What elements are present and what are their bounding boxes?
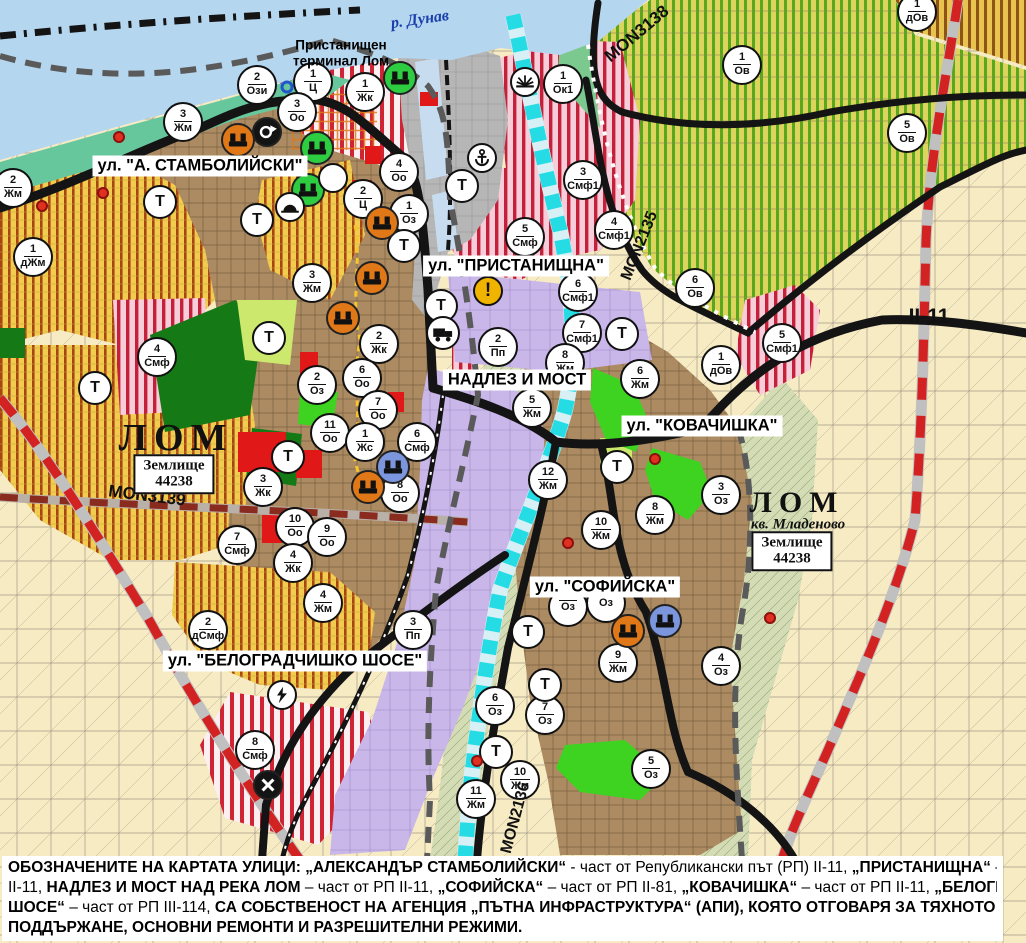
zone-badge-6-Оз: 6Оз [475, 686, 515, 726]
street-label: ул. "ПРИСТАНИЩНА" [423, 256, 609, 277]
zone-badge-3-Жм: 3Жм [292, 263, 332, 303]
zone-badge-1-Ов: 1Ов [722, 45, 762, 85]
culture-monument-icon [221, 123, 255, 157]
caption-line: II-11, НАДЛЕЗ И МОСТ НАД РЕКА ЛОМ – част… [8, 878, 997, 898]
zone-badge-1-дОв: 1дОв [701, 345, 741, 385]
zone-badge-5-Ов: 5Ов [887, 113, 927, 153]
zone-badge-2-дСмф: 2дСмф [188, 610, 228, 650]
zone-badge-3-Оо: 3Оо [277, 92, 317, 132]
transport-badge: Т [78, 371, 112, 405]
poi-blue-ring [281, 81, 294, 94]
zone-badge-4-Оо: 4Оо [379, 152, 419, 192]
land-register-box: Землище 44238 [133, 454, 214, 494]
sunrise-icon [510, 67, 540, 97]
transport-badge: Т [605, 317, 639, 351]
transport-badge: Т [143, 185, 177, 219]
caption-line: ШОСЕ“ – част от РП III-114, СА СОБСТВЕНО… [8, 898, 997, 918]
culture-monument-icon [355, 261, 389, 295]
zone-badge-3-Оз: 3Оз [701, 475, 741, 515]
zone-badge-4-Оз: 4Оз [701, 646, 741, 686]
poi-red-dot [649, 453, 661, 465]
zone-badge-5-Смф: 5Смф [505, 217, 545, 257]
zone-badge-2-Оз: 2Оз [297, 365, 337, 405]
map-caption: ОБОЗНАЧЕНИТЕ НА КАРТАТА УЛИЦИ: „АЛЕКСАНД… [2, 856, 1003, 941]
road-number-label: II-11 [909, 305, 950, 329]
zone-badge-11-Оо: 11Оо [310, 413, 350, 453]
transport-badge: Т [252, 321, 286, 355]
transport-badge: Т [240, 203, 274, 237]
port-terminal-label: Пристанищен терминал Лом [293, 37, 389, 68]
zoning-map: 2Ози1Ц1Жк3Оо3Жм2Жм1дЖм1Ок11Ов1дОв5Ов3Смф… [0, 0, 1026, 943]
transport-badge: Т [511, 615, 545, 649]
zone-badge-1-Ок1: 1Ок1 [543, 64, 583, 104]
zone-badge-2-Ози: 2Ози [237, 65, 277, 105]
zone-badge-10-Жм: 10Жм [581, 510, 621, 550]
zone-badge-8-Жм: 8Жм [635, 495, 675, 535]
zone-badge-3-Жм: 3Жм [163, 102, 203, 142]
poi-red-dot [764, 612, 776, 624]
zone-badge-1-Жк: 1Жк [345, 72, 385, 112]
clover-icon [318, 163, 348, 193]
poi-red-dot [113, 131, 125, 143]
anchor-icon [467, 143, 497, 173]
street-label: НАДЛЕЗ И МОСТ [443, 370, 591, 391]
river-label: р. Дунав [390, 7, 450, 33]
culture-monument-icon [326, 301, 360, 335]
zone-badge-7-Смф: 7Смф [217, 525, 257, 565]
map-annotations: 2Ози1Ц1Жк3Оо3Жм2Жм1дЖм1Ок11Ов1дОв5Ов3Смф… [0, 0, 1026, 943]
zone-badge-2-Жм: 2Жм [0, 168, 33, 208]
transport-badge: Т [600, 450, 634, 484]
zone-badge-6-Ов: 6Ов [675, 268, 715, 308]
transport-badge: Т [271, 440, 305, 474]
zone-badge-5-Оз: 5Оз [631, 749, 671, 789]
transport-badge: Т [445, 169, 479, 203]
warning-icon: ! [473, 276, 503, 306]
culture-monument-icon [365, 206, 399, 240]
street-label: ул. "КОВАЧИШКА" [622, 416, 783, 437]
railway-crossing-icon [253, 770, 283, 800]
zone-badge-3-Жк: 3Жк [243, 467, 283, 507]
roundabout-icon [252, 117, 282, 147]
street-label: ул. "СОФИЙСКА" [530, 577, 680, 598]
zone-badge-9-Жм: 9Жм [598, 643, 638, 683]
zone-badge-4-Смф: 4Смф [137, 337, 177, 377]
city-name-label: ЛОМ [749, 486, 844, 520]
arch-icon [275, 192, 305, 222]
zone-badge-12-Жм: 12Жм [528, 460, 568, 500]
zone-badge-6-Жм: 6Жм [620, 359, 660, 399]
zone-badge-1-дОв: 1дОв [897, 0, 937, 32]
zone-badge-1-дЖм: 1дЖм [13, 237, 53, 277]
caption-line: ПОДДЪРЖАНЕ, ОСНОВНИ РЕМОНТИ И РАЗРЕШИТЕЛ… [8, 918, 997, 938]
poi-red-dot [36, 200, 48, 212]
poi-red-dot [471, 755, 483, 767]
zone-badge-11-Жм: 11Жм [456, 779, 496, 819]
zone-badge-2-Пп: 2Пп [478, 327, 518, 367]
culture-monument-icon [376, 450, 410, 484]
street-label: ул. "БЕЛОГРАДЧИШКО ШОСЕ" [163, 651, 427, 672]
zone-badge-5-Смф1: 5Смф1 [762, 323, 802, 363]
zone-badge-4-Жм: 4Жм [303, 583, 343, 623]
transport-badge: Т [528, 668, 562, 702]
poi-red-dot [562, 537, 574, 549]
road-number-label: MON3138 [601, 1, 673, 66]
truck-icon [426, 316, 460, 350]
zone-badge-6-Смф1: 6Смф1 [558, 272, 598, 312]
zone-badge-8-Смф: 8Смф [235, 730, 275, 770]
transport-badge: Т [479, 735, 513, 769]
poi-red-dot [97, 187, 109, 199]
culture-monument-icon [648, 604, 682, 638]
zone-badge-9-Оо: 9Оо [307, 517, 347, 557]
street-label: ул. "А. СТАМБОЛИЙСКИ" [93, 156, 308, 177]
zone-badge-5-Жм: 5Жм [512, 388, 552, 428]
zone-badge-4-Смф1: 4Смф1 [594, 210, 634, 250]
zone-badge-4-Жк: 4Жк [273, 543, 313, 583]
culture-monument-icon [611, 614, 645, 648]
lightning-icon [267, 680, 297, 710]
zone-badge-3-Смф1: 3Смф1 [563, 160, 603, 200]
land-register-box: Землище 44238 [751, 531, 832, 571]
caption-line: ОБОЗНАЧЕНИТЕ НА КАРТАТА УЛИЦИ: „АЛЕКСАНД… [8, 858, 997, 878]
zone-badge-3-Пп: 3Пп [393, 610, 433, 650]
